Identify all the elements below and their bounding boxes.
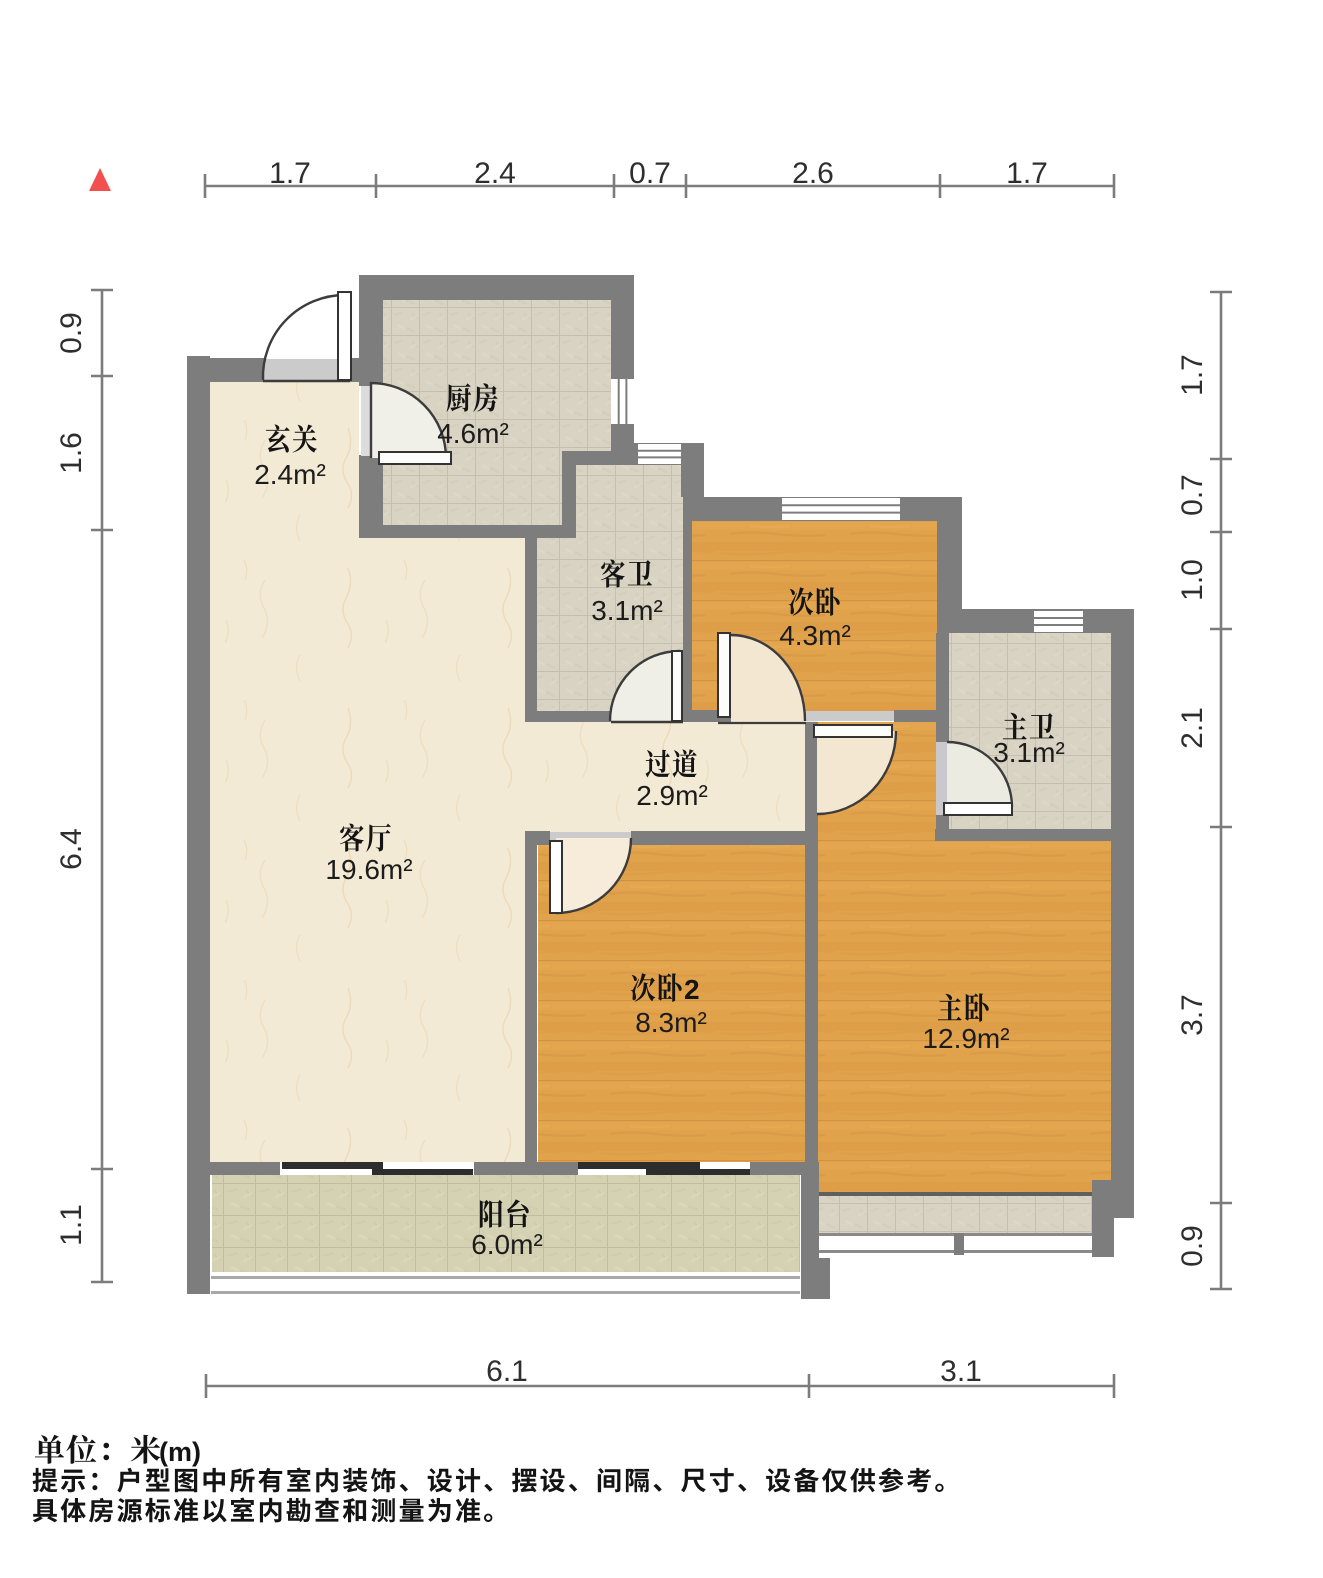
svg-text:0.7: 0.7 — [1176, 474, 1209, 516]
svg-text:1.6: 1.6 — [55, 432, 88, 474]
svg-text:0.9: 0.9 — [1176, 1225, 1209, 1267]
svg-text:3.1m²: 3.1m² — [591, 595, 663, 626]
svg-text:1.0: 1.0 — [1176, 559, 1209, 601]
svg-text:3.7: 3.7 — [1176, 994, 1209, 1036]
svg-text:6.0m²: 6.0m² — [471, 1229, 543, 1260]
svg-text:19.6m²: 19.6m² — [325, 854, 412, 885]
svg-text:4.6m²: 4.6m² — [437, 418, 509, 449]
svg-text:6.4: 6.4 — [55, 828, 88, 870]
svg-text:2.6: 2.6 — [792, 157, 834, 190]
svg-text:2.9m²: 2.9m² — [636, 780, 708, 811]
svg-text:6.1: 6.1 — [486, 1355, 528, 1388]
svg-text:(m): (m) — [159, 1437, 201, 1467]
svg-text:1.7: 1.7 — [269, 157, 311, 190]
svg-text:1.7: 1.7 — [1176, 354, 1209, 396]
svg-text:2.1: 2.1 — [1176, 707, 1209, 749]
svg-text:2.4m²: 2.4m² — [254, 459, 326, 490]
svg-text:3.1m²: 3.1m² — [993, 737, 1065, 768]
svg-text:0.7: 0.7 — [629, 157, 671, 190]
svg-text:1.7: 1.7 — [1006, 157, 1048, 190]
svg-text:0.9: 0.9 — [55, 312, 88, 354]
svg-text:12.9m²: 12.9m² — [922, 1023, 1009, 1054]
svg-text:3.1: 3.1 — [940, 1355, 982, 1388]
svg-text:2.4: 2.4 — [474, 157, 516, 190]
svg-text:1.1: 1.1 — [55, 1204, 88, 1246]
svg-text:8.3m²: 8.3m² — [635, 1007, 707, 1038]
svg-text:4.3m²: 4.3m² — [779, 620, 851, 651]
svg-text:2: 2 — [684, 974, 700, 1005]
